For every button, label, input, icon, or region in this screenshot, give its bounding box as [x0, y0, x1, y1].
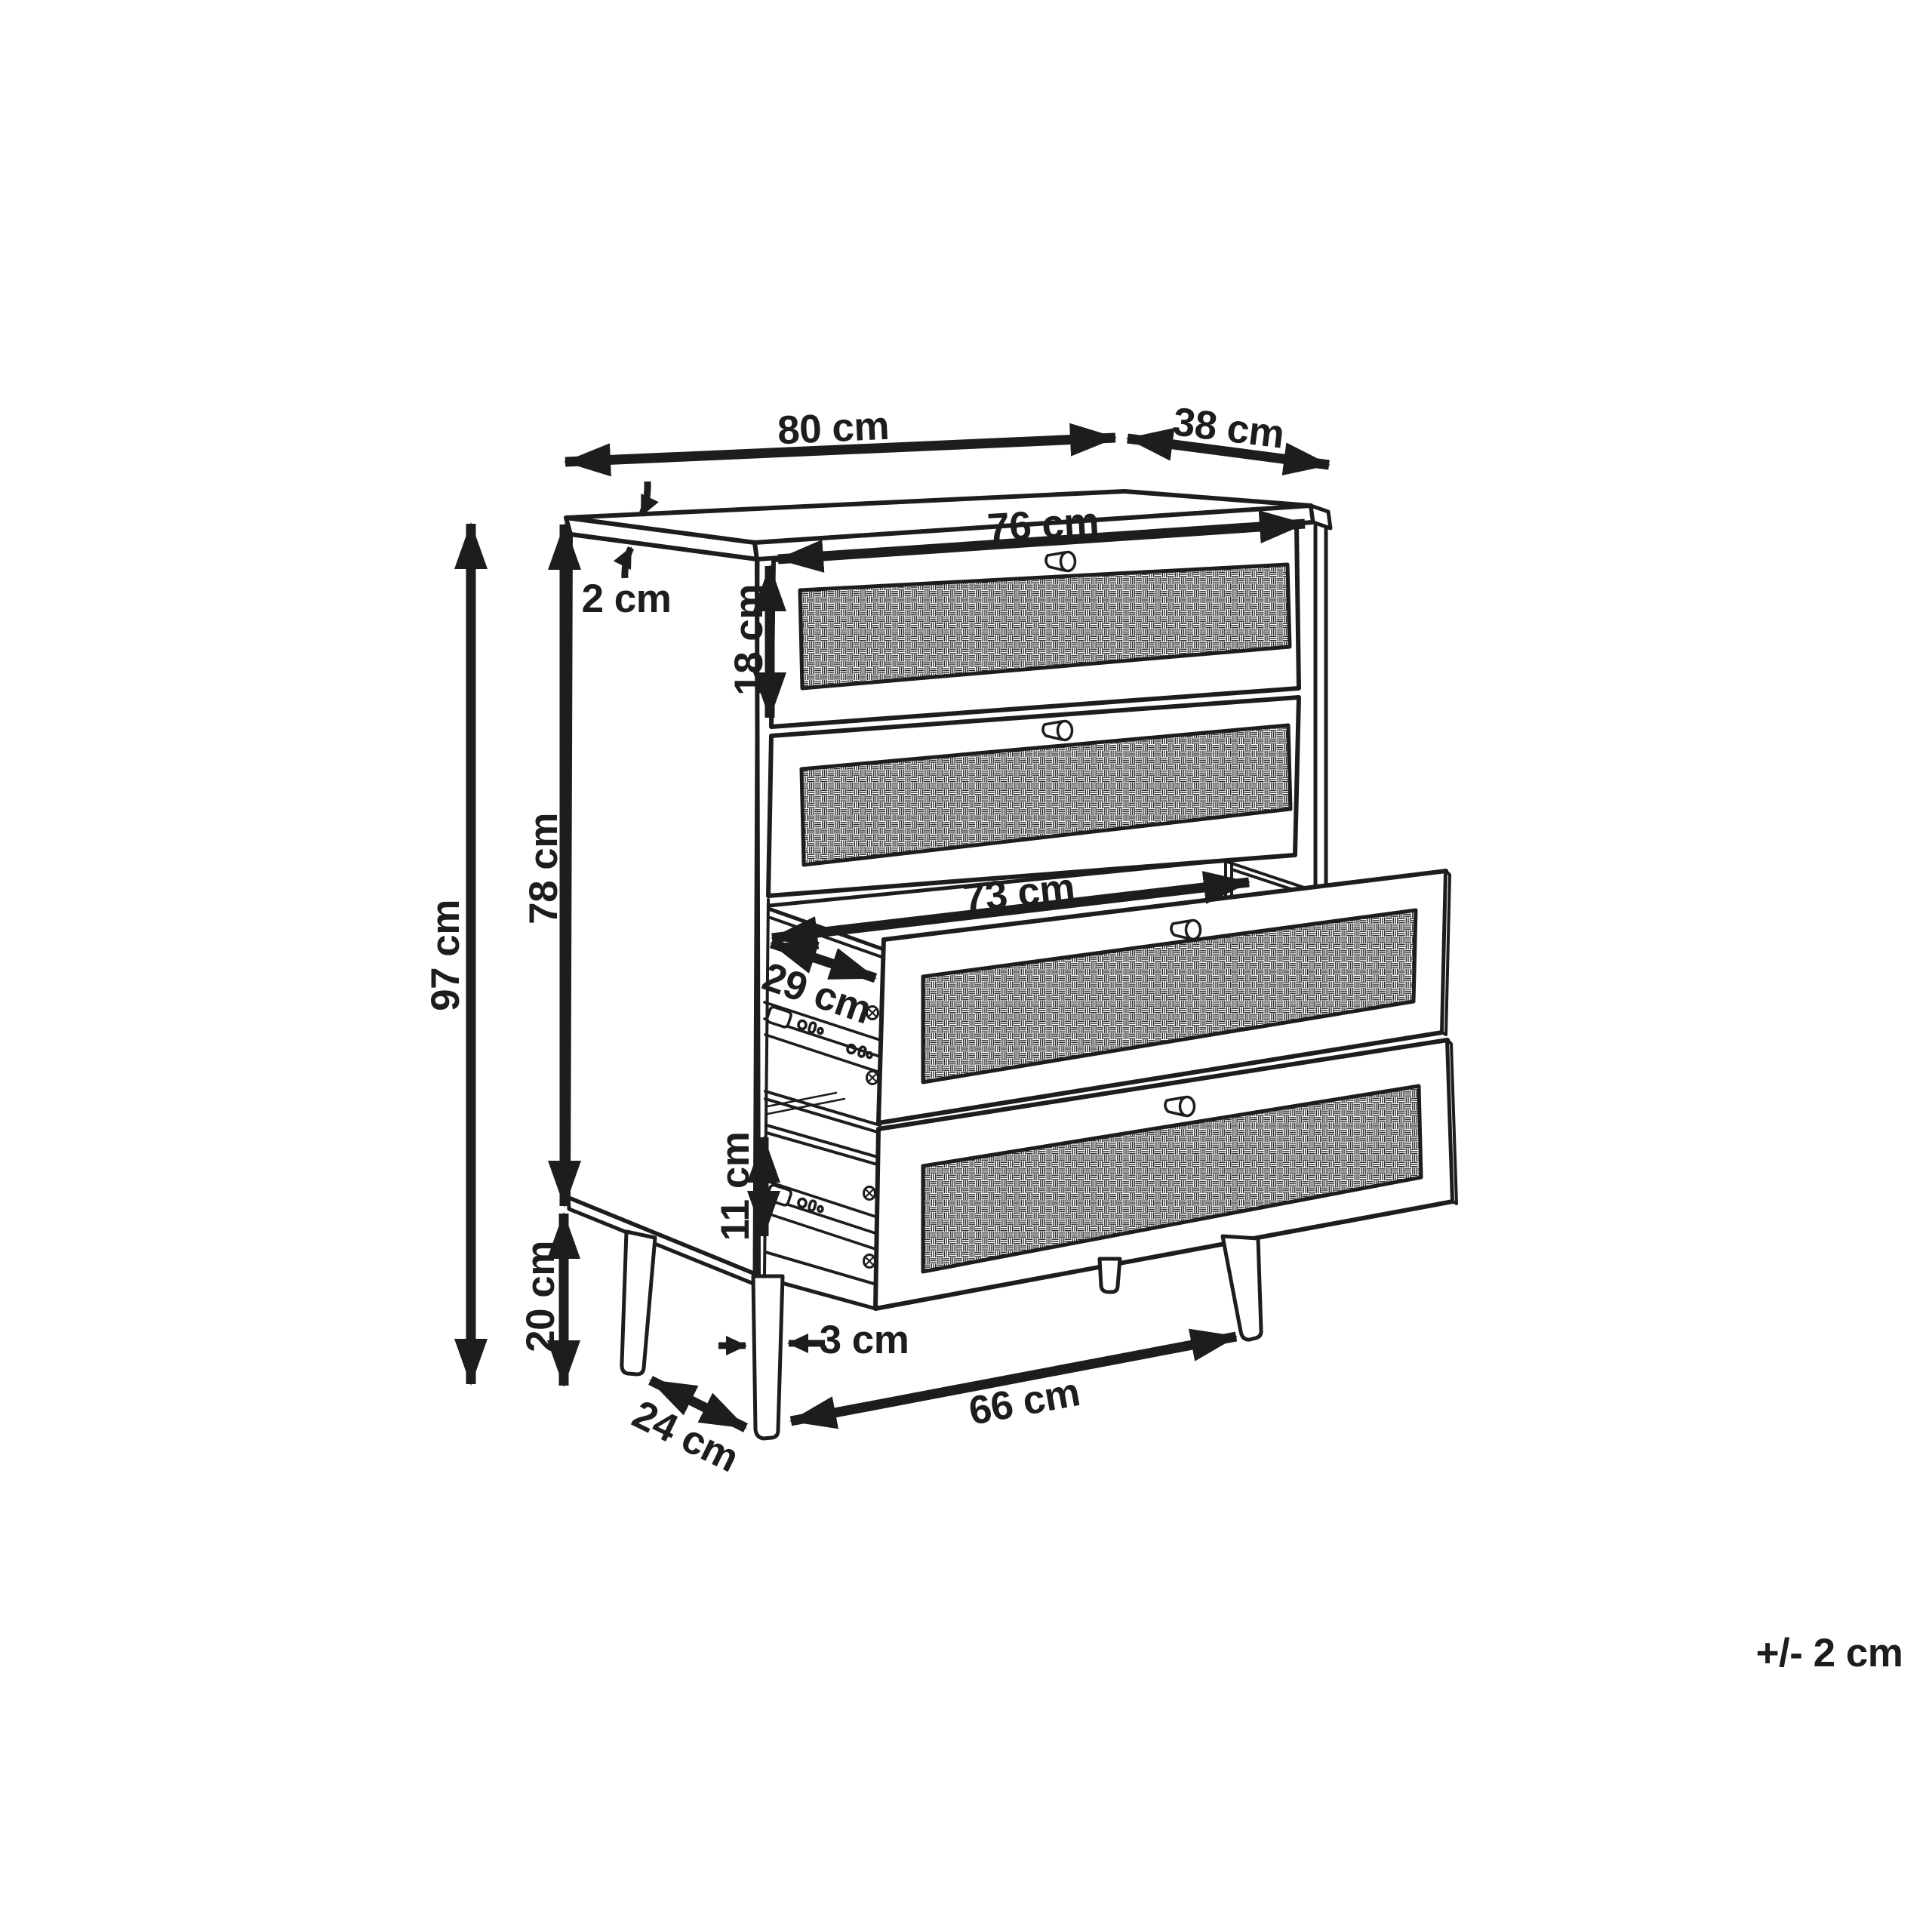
svg-text:3 cm: 3 cm [820, 1318, 909, 1362]
svg-text:97 cm: 97 cm [423, 900, 468, 1011]
svg-text:18 cm: 18 cm [727, 584, 771, 696]
svg-text:+/- 2 cm: +/- 2 cm [1756, 1631, 1903, 1675]
svg-text:76 cm: 76 cm [986, 500, 1100, 551]
svg-text:20 cm: 20 cm [518, 1241, 563, 1352]
svg-text:78 cm: 78 cm [521, 813, 566, 924]
svg-text:80 cm: 80 cm [777, 404, 890, 453]
svg-text:2 cm: 2 cm [582, 577, 672, 621]
svg-text:11 cm: 11 cm [713, 1132, 758, 1241]
